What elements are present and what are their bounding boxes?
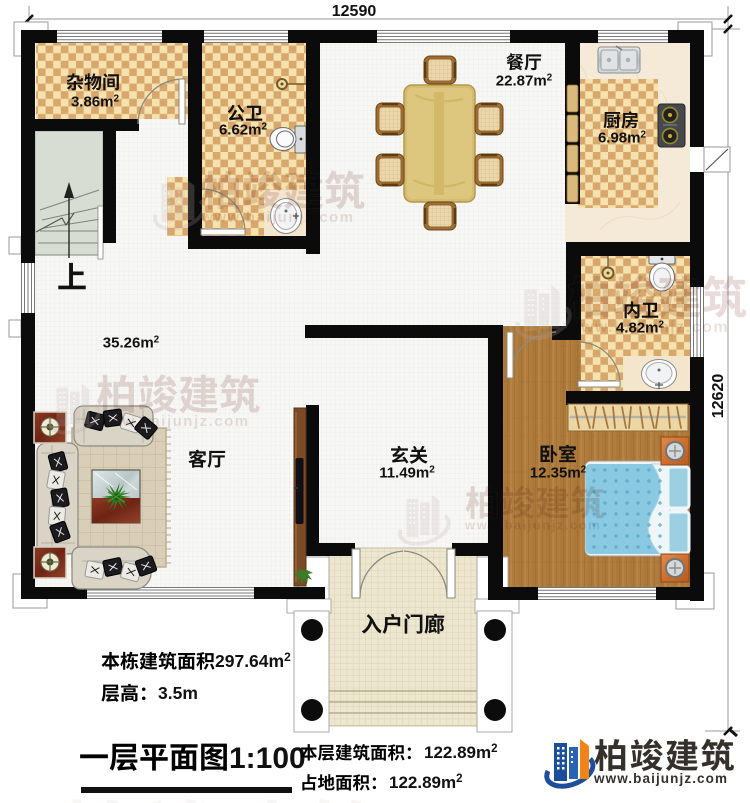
svg-text:6.98m2: 6.98m2 <box>598 129 647 146</box>
svg-text:12.35m2: 12.35m2 <box>530 464 587 481</box>
svg-text:www.baijunjz.com: www.baijunjz.com <box>95 413 249 430</box>
svg-text:3.86m2: 3.86m2 <box>71 93 120 110</box>
svg-text:12620: 12620 <box>710 374 727 419</box>
svg-text:3.5m: 3.5m <box>158 683 198 703</box>
svg-text:35.26m2: 35.26m2 <box>103 334 160 351</box>
svg-text:6.62m2: 6.62m2 <box>219 121 268 138</box>
svg-text:1:100: 1:100 <box>229 742 306 775</box>
svg-text:297.64m2: 297.64m2 <box>215 650 291 671</box>
svg-text:11.49m2: 11.49m2 <box>379 464 435 481</box>
svg-text:www.baijunjz.com: www.baijunjz.com <box>593 771 728 786</box>
svg-text:www.baijunjz.com: www.baijunjz.com <box>566 319 729 336</box>
svg-text:122.89m2: 122.89m2 <box>424 743 498 762</box>
svg-text:122.89m2: 122.89m2 <box>389 773 463 792</box>
svg-text:22.87m2: 22.87m2 <box>496 72 553 89</box>
svg-text:www.baijunjz.com: www.baijunjz.com <box>464 518 601 533</box>
svg-text:www.baijunjz.com: www.baijunjz.com <box>200 209 354 226</box>
svg-text:12590: 12590 <box>332 3 377 20</box>
